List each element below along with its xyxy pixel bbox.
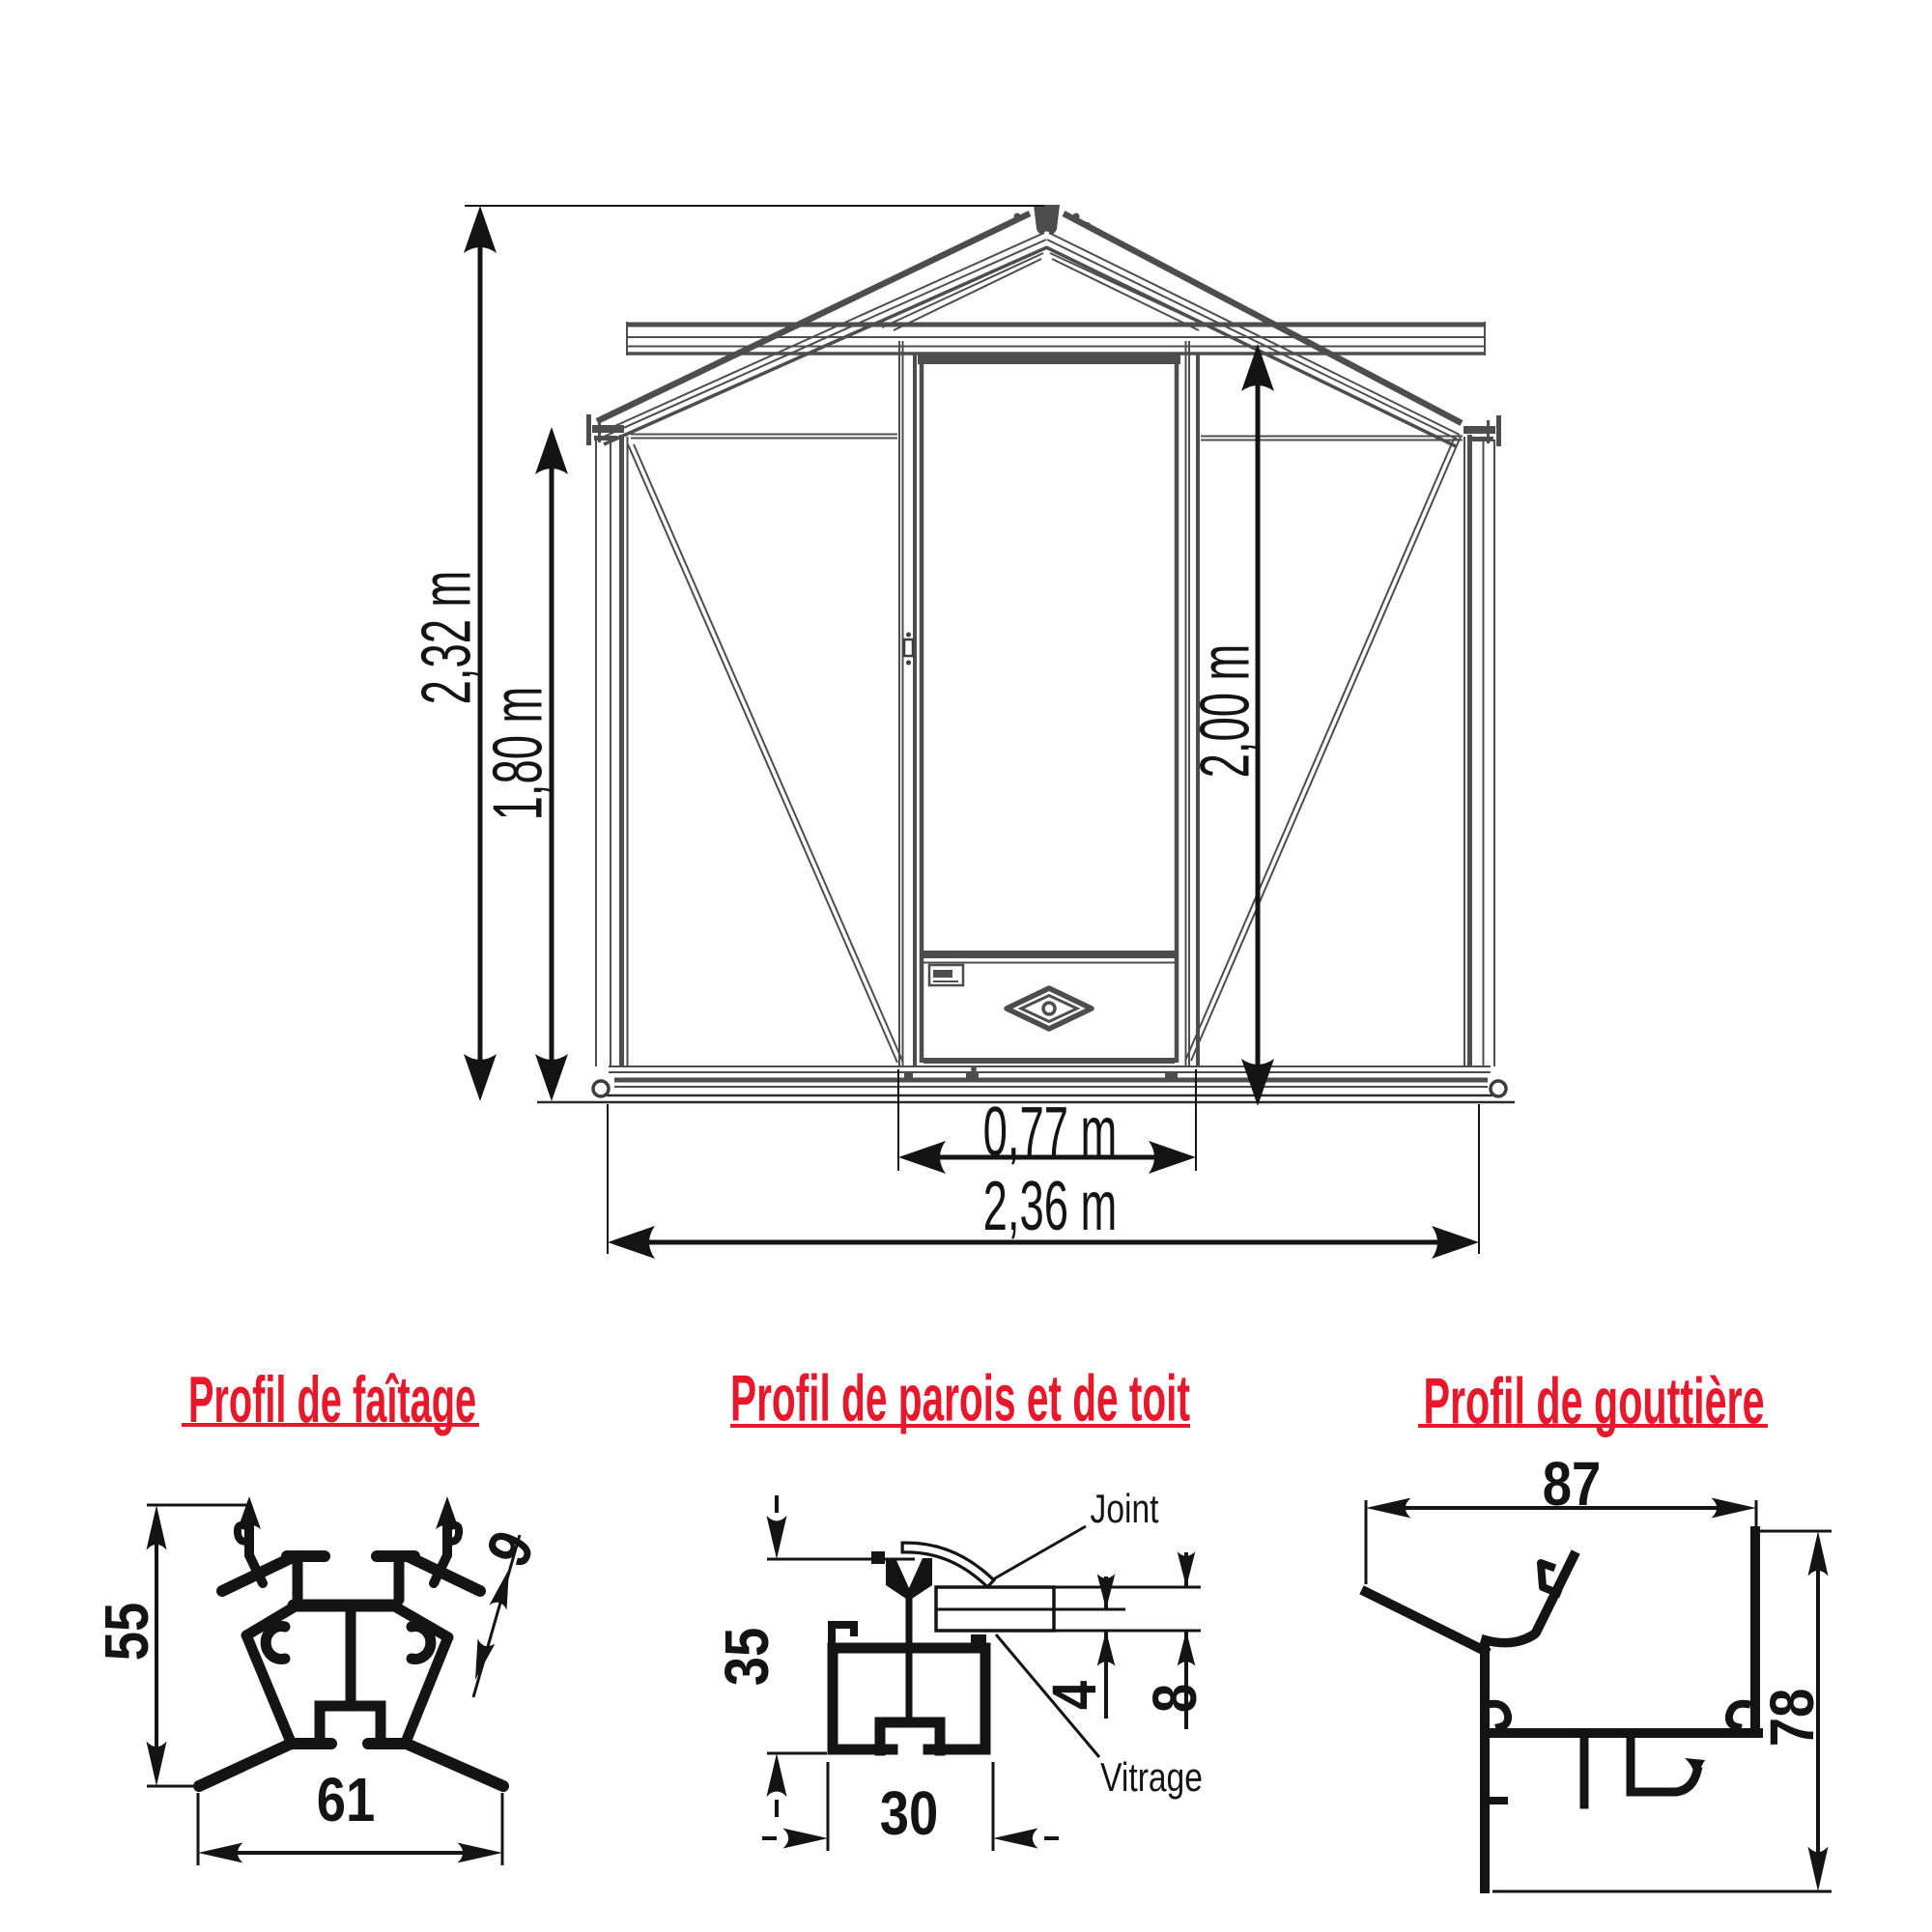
- svg-text:4: 4: [1039, 1681, 1109, 1710]
- svg-text:Profil de parois et de toit: Profil de parois et de toit: [730, 1361, 1190, 1435]
- svg-text:35: 35: [712, 1628, 781, 1686]
- svg-text:2,00 m: 2,00 m: [1186, 644, 1264, 779]
- svg-text:78: 78: [1757, 1689, 1827, 1747]
- svg-text:2,36 m: 2,36 m: [983, 1167, 1118, 1244]
- svg-text:0,77 m: 0,77 m: [983, 1093, 1118, 1170]
- svg-text:1,80 m: 1,80 m: [479, 687, 556, 821]
- svg-text:Joint: Joint: [1091, 1488, 1159, 1532]
- svg-text:61: 61: [317, 1765, 375, 1834]
- svg-text:55: 55: [92, 1603, 161, 1661]
- svg-text:87: 87: [1543, 1449, 1601, 1519]
- svg-text:2,32 m: 2,32 m: [408, 571, 485, 705]
- svg-text:Vitrage: Vitrage: [1100, 1756, 1203, 1801]
- svg-text:30: 30: [880, 1778, 938, 1848]
- svg-text:8: 8: [1140, 1684, 1209, 1713]
